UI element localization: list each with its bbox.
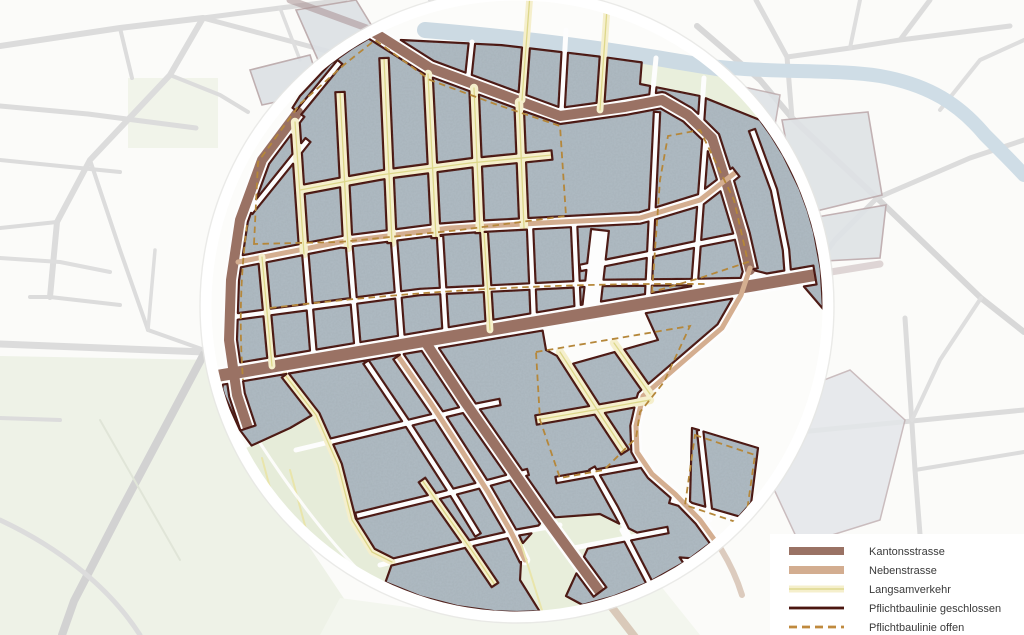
svg-text:Kantonsstrasse: Kantonsstrasse	[869, 546, 945, 558]
svg-text:Pflichtbaulinie geschlossen: Pflichtbaulinie geschlossen	[869, 603, 1001, 615]
svg-text:Langsamverkehr: Langsamverkehr	[869, 584, 951, 596]
svg-text:Pflichtbaulinie offen: Pflichtbaulinie offen	[869, 622, 964, 634]
svg-text:Nebenstrasse: Nebenstrasse	[869, 565, 937, 577]
